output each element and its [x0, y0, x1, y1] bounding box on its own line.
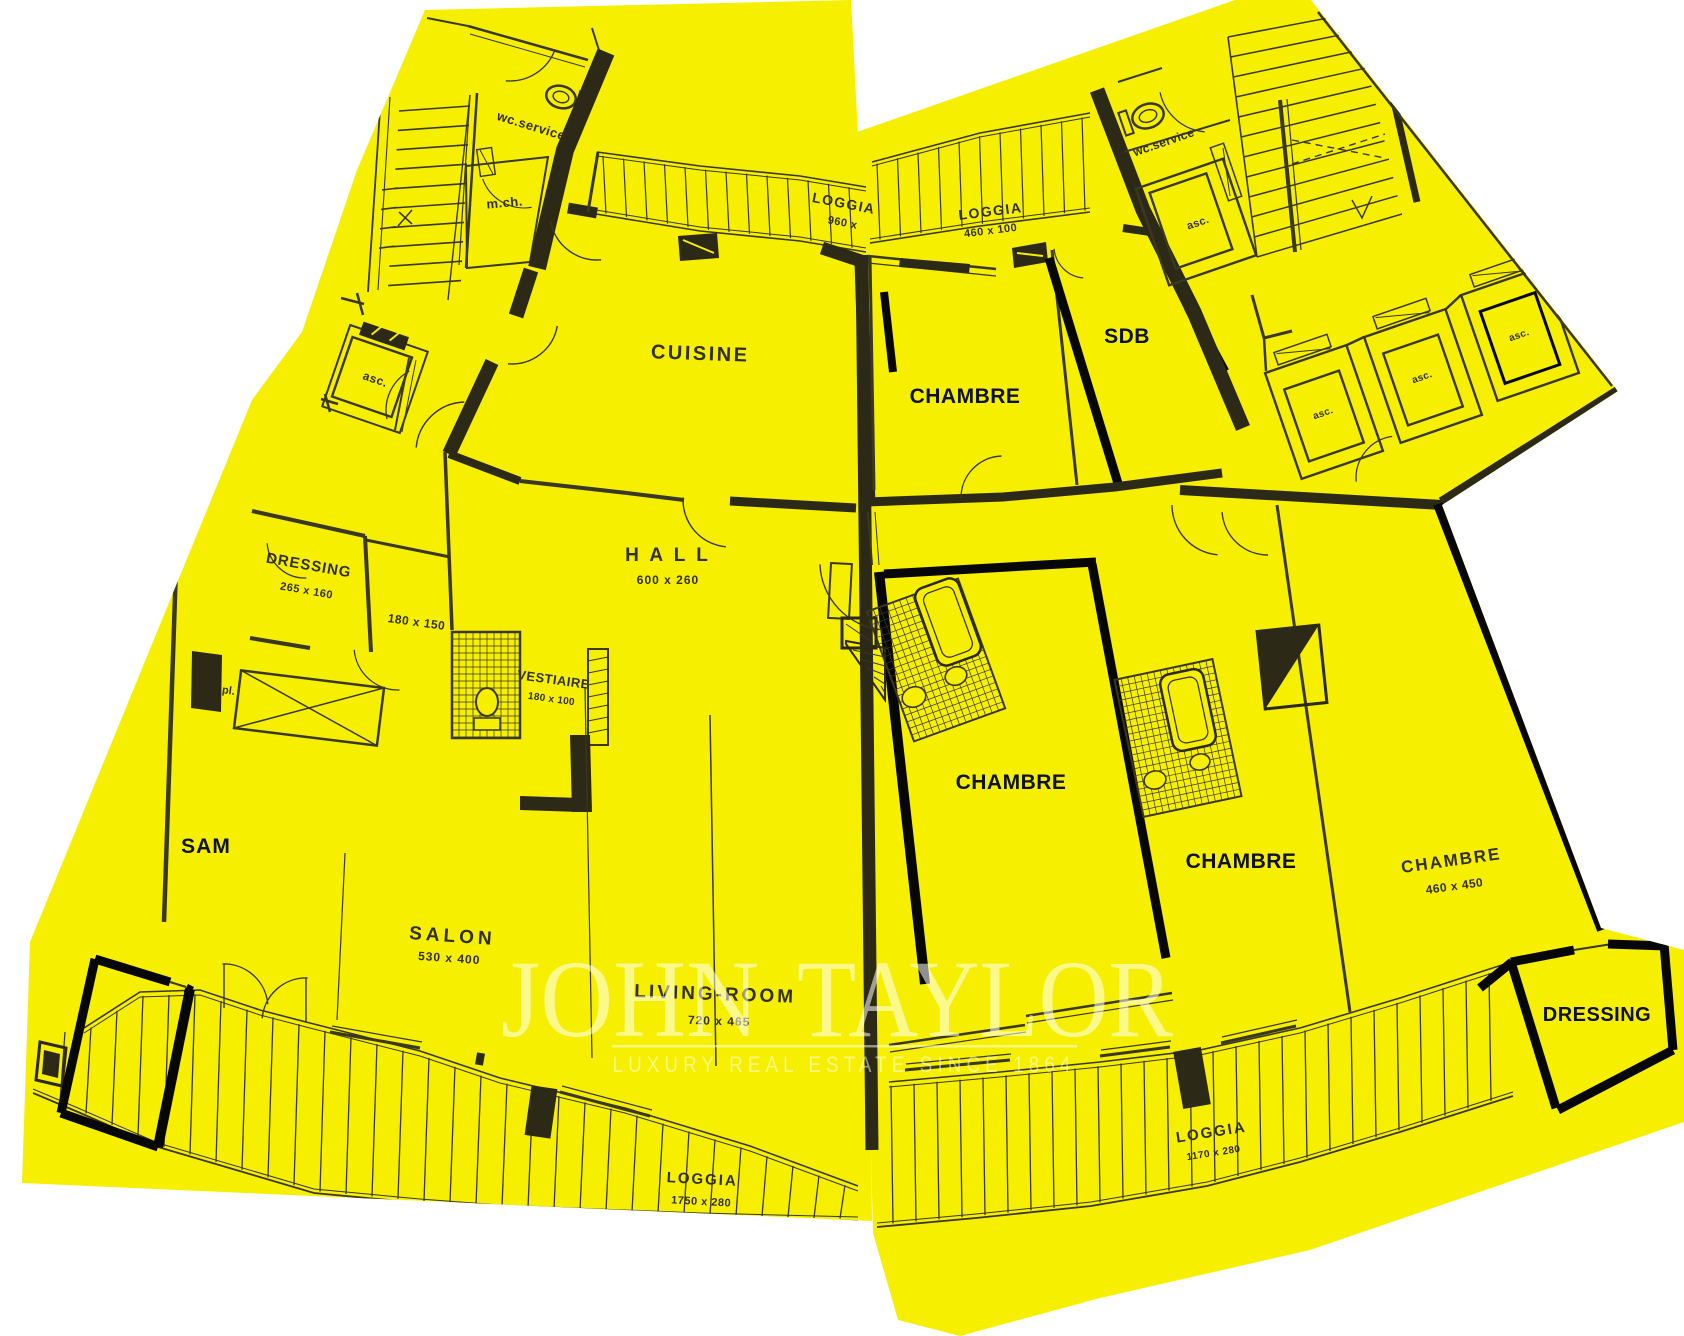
svg-text:SAM: SAM — [181, 835, 231, 858]
svg-text:JOHN: JOHN — [501, 938, 759, 1060]
svg-text:DRESSING: DRESSING — [1543, 1004, 1651, 1026]
svg-text:SDB: SDB — [1104, 325, 1150, 348]
svg-text:H A L L: H A L L — [625, 545, 711, 566]
svg-text:m.ch.: m.ch. — [486, 193, 524, 211]
svg-text:CUISINE: CUISINE — [651, 341, 750, 366]
svg-text:600 x 260: 600 x 260 — [637, 573, 699, 587]
svg-text:CHAMBRE: CHAMBRE — [910, 385, 1021, 408]
svg-text:TAYLOR: TAYLOR — [797, 938, 1174, 1060]
svg-text:CHAMBRE: CHAMBRE — [956, 771, 1067, 794]
svg-text:LUXURY REAL ESTATE SINCE 1864: LUXURY REAL ESTATE SINCE 1864 — [613, 1052, 1076, 1077]
svg-text:pl.: pl. — [221, 684, 235, 698]
svg-text:CHAMBRE: CHAMBRE — [1186, 850, 1297, 873]
